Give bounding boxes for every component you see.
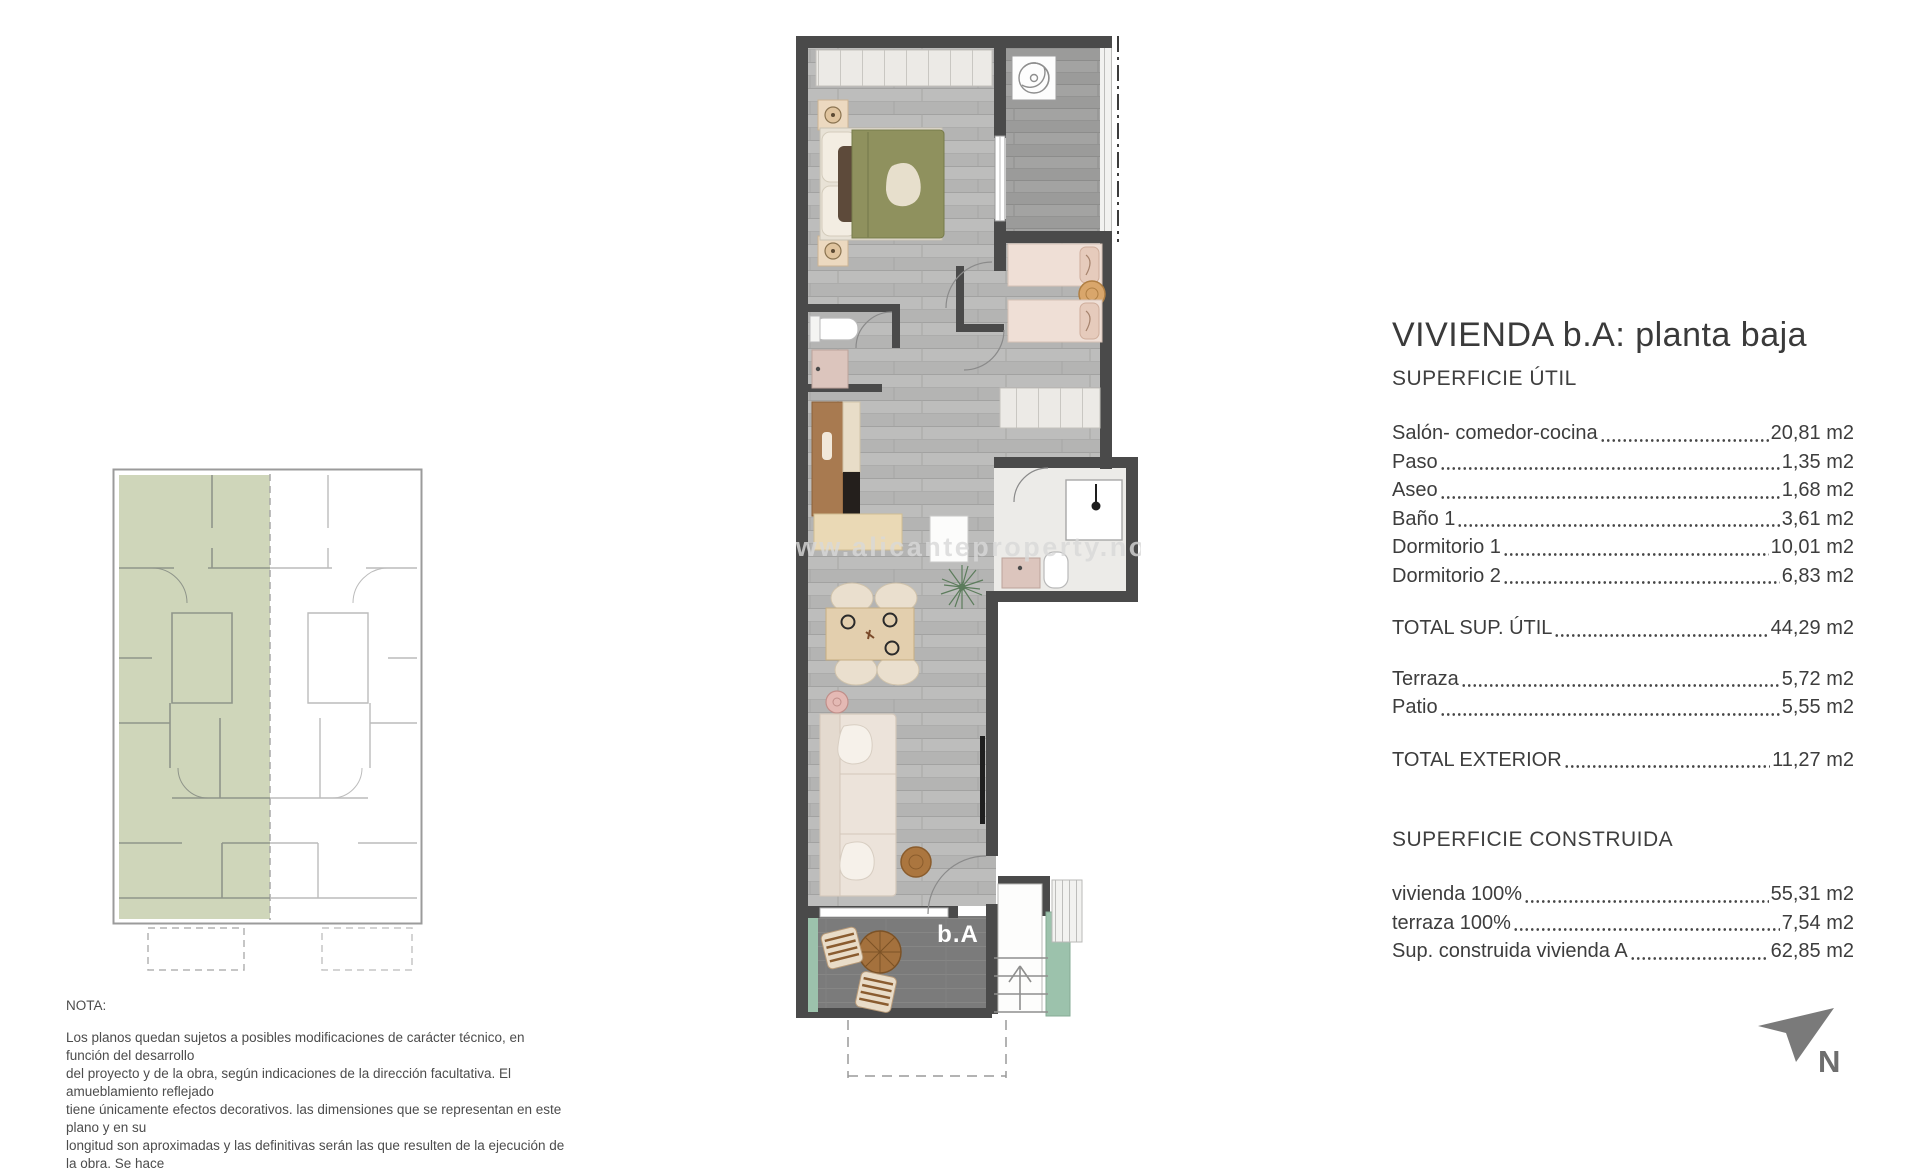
dotted-leader bbox=[1503, 553, 1769, 556]
area-value: 5,72 m2 bbox=[1782, 665, 1854, 694]
north-label: N bbox=[1818, 1044, 1840, 1080]
apartment-floor-plan: b.A www.alicanteproperty.no bbox=[796, 36, 1141, 1080]
key-plan-dashed-box-right bbox=[322, 928, 412, 970]
nota-line: tiene únicamente efectos decorativos. la… bbox=[66, 1101, 571, 1137]
key-plan-highlighted-unit bbox=[119, 475, 270, 919]
area-value: 7,54 m2 bbox=[1782, 909, 1854, 938]
planter-left bbox=[808, 918, 818, 1012]
area-value: 1,35 m2 bbox=[1782, 448, 1854, 477]
nota-line: del proyecto y de la obra, según indicac… bbox=[66, 1065, 571, 1101]
nota-line: longitud son aproximadas y las definitiv… bbox=[66, 1137, 571, 1173]
oven bbox=[843, 472, 860, 516]
superficie-util-table: Salón- comedor-cocina 20,81 m2 Paso 1,35… bbox=[1392, 419, 1854, 590]
living-slider-door bbox=[820, 908, 948, 917]
area-row: Aseo 1,68 m2 bbox=[1392, 476, 1854, 505]
area-row: Baño 1 3,61 m2 bbox=[1392, 505, 1854, 534]
sofa-pillow bbox=[840, 842, 874, 880]
floorplan-sheet: { "title": "VIVIENDA b.A: planta baja", … bbox=[0, 0, 1920, 1080]
area-value: 55,31 m2 bbox=[1771, 880, 1854, 909]
throw-blanket bbox=[886, 163, 921, 206]
area-row: Sup. construida vivienda A 62,85 m2 bbox=[1392, 937, 1854, 966]
side-table-pink bbox=[826, 691, 848, 713]
coffee-table bbox=[901, 847, 931, 877]
single-bed bbox=[1008, 244, 1102, 286]
double-bed bbox=[820, 128, 944, 240]
area-row: vivienda 100% 55,31 m2 bbox=[1392, 880, 1854, 909]
page-title: VIVIENDA b.A: planta baja bbox=[1392, 316, 1854, 355]
dotted-leader bbox=[1503, 581, 1780, 584]
terrace-pouf bbox=[855, 971, 898, 1014]
dotted-leader bbox=[1564, 765, 1770, 768]
superficie-util-heading: SUPERFICIE ÚTIL bbox=[1392, 367, 1854, 391]
area-row: terraza 100% 7,54 m2 bbox=[1392, 909, 1854, 938]
nota-disclaimer: NOTA: Los planos quedan sujetos a posibl… bbox=[66, 998, 571, 1173]
area-value: 6,83 m2 bbox=[1782, 562, 1854, 591]
sofa bbox=[820, 714, 896, 896]
area-row: Patio 5,55 m2 bbox=[1392, 693, 1854, 722]
wardrobe bbox=[816, 50, 992, 86]
exterior-table: Terraza 5,72 m2 Patio 5,55 m2 bbox=[1392, 665, 1854, 722]
wardrobe bbox=[1000, 388, 1100, 428]
dashed-projection bbox=[848, 1020, 1006, 1078]
dotted-leader bbox=[1440, 496, 1780, 499]
dotted-leader bbox=[1554, 634, 1768, 637]
area-value: 62,85 m2 bbox=[1771, 937, 1854, 966]
dotted-leader bbox=[1440, 713, 1780, 716]
area-summary-panel: VIVIENDA b.A: planta baja SUPERFICIE ÚTI… bbox=[1392, 316, 1854, 966]
area-row: Salón- comedor-cocina 20,81 m2 bbox=[1392, 419, 1854, 448]
nota-line: Los planos quedan sujetos a posibles mod… bbox=[66, 1029, 571, 1065]
area-value: 5,55 m2 bbox=[1782, 693, 1854, 722]
sofa-pillow bbox=[838, 725, 872, 764]
cabinet-handle bbox=[822, 432, 832, 460]
sink bbox=[1002, 558, 1040, 588]
area-label: Patio bbox=[1392, 693, 1438, 722]
area-row: Dormitorio 2 6,83 m2 bbox=[1392, 562, 1854, 591]
tv bbox=[980, 736, 985, 824]
area-row: Dormitorio 1 10,01 m2 bbox=[1392, 533, 1854, 562]
single-bed bbox=[1008, 300, 1102, 342]
patio-side-hatch bbox=[1100, 48, 1112, 231]
dotted-leader bbox=[1524, 900, 1769, 903]
area-value: 20,81 m2 bbox=[1771, 419, 1854, 448]
total-util-row: TOTAL SUP. ÚTIL 44,29 m2 bbox=[1392, 614, 1854, 643]
construida-table: vivienda 100% 55,31 m2 terraza 100% 7,54… bbox=[1392, 880, 1854, 966]
dotted-leader bbox=[1440, 467, 1780, 470]
area-label: vivienda 100% bbox=[1392, 880, 1522, 909]
dotted-leader bbox=[1630, 957, 1769, 960]
area-row: Paso 1,35 m2 bbox=[1392, 448, 1854, 477]
counter-strip bbox=[843, 402, 860, 472]
area-label: Paso bbox=[1392, 448, 1438, 477]
area-row: Terraza 5,72 m2 bbox=[1392, 665, 1854, 694]
area-label: terraza 100% bbox=[1392, 909, 1511, 938]
area-label: Aseo bbox=[1392, 476, 1438, 505]
entry-glazing bbox=[1052, 880, 1082, 942]
area-label: Baño 1 bbox=[1392, 505, 1455, 534]
area-value: 1,68 m2 bbox=[1782, 476, 1854, 505]
nota-heading: NOTA: bbox=[66, 998, 571, 1013]
key-plan-dashed-box-left bbox=[148, 928, 244, 970]
total-exterior-row: TOTAL EXTERIOR 11,27 m2 bbox=[1392, 746, 1854, 775]
area-label: Dormitorio 2 bbox=[1392, 562, 1501, 591]
area-value: 3,61 m2 bbox=[1782, 505, 1854, 534]
superficie-construida-heading: SUPERFICIE CONSTRUIDA bbox=[1392, 828, 1854, 852]
watermark: www.alicanteproperty.no bbox=[796, 532, 1141, 562]
north-arrow-icon bbox=[1752, 1000, 1882, 1080]
dotted-leader bbox=[1461, 684, 1780, 687]
north-indicator: N bbox=[1752, 1000, 1882, 1080]
patio bbox=[1012, 56, 1056, 100]
site-key-plan bbox=[112, 468, 424, 1008]
dotted-leader bbox=[1513, 928, 1780, 931]
dotted-leader bbox=[1457, 524, 1779, 527]
unit-label: b.A bbox=[937, 921, 979, 948]
area-label: Salón- comedor-cocina bbox=[1392, 419, 1598, 448]
area-label: Dormitorio 1 bbox=[1392, 533, 1501, 562]
dotted-leader bbox=[1600, 439, 1769, 442]
area-value: 10,01 m2 bbox=[1771, 533, 1854, 562]
area-label: Sup. construida vivienda A bbox=[1392, 937, 1628, 966]
toilet bbox=[814, 318, 858, 340]
area-label: Terraza bbox=[1392, 665, 1459, 694]
